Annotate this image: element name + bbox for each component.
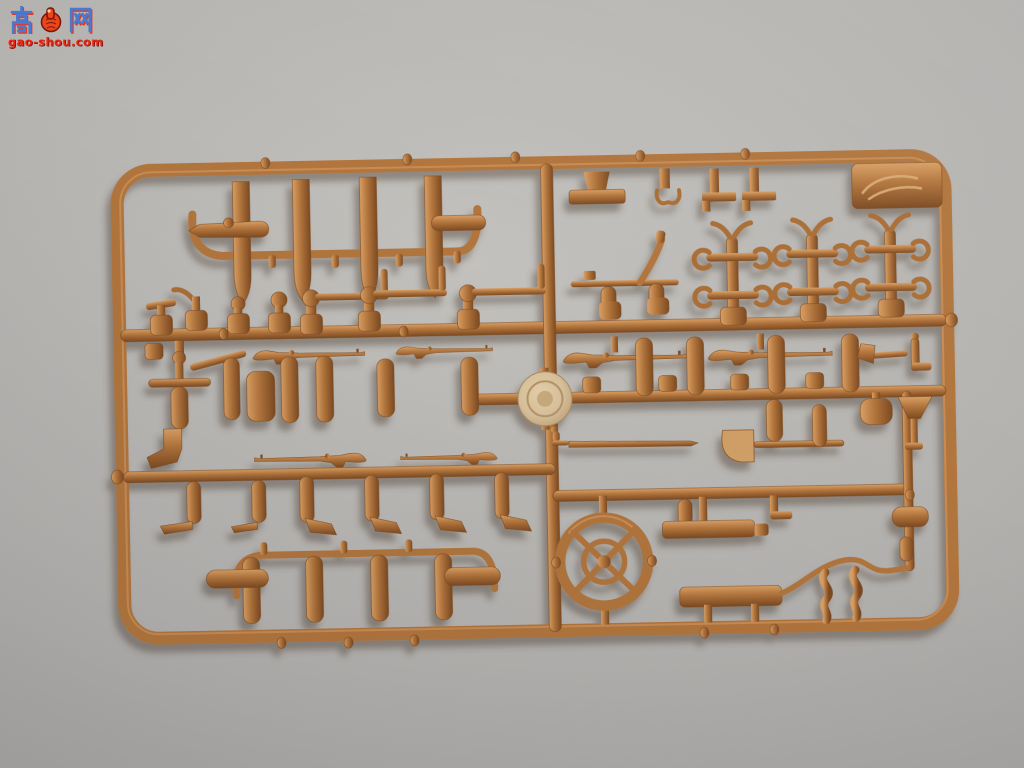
sprue-peg: [396, 253, 403, 266]
entrenching-tool-part: [429, 473, 466, 533]
plate-bracket-part: [569, 171, 626, 204]
barrel-cylinder-part: [292, 179, 311, 301]
sprue-nub: [344, 637, 353, 648]
pod-part-right: [431, 215, 485, 231]
cylinder-part: [370, 555, 388, 621]
watermark-url: gao-shou.com: [8, 35, 104, 49]
hanging-bracket-row: [569, 166, 777, 214]
sprue-pad: [731, 374, 749, 390]
sprue-nub: [511, 152, 520, 163]
sprue-pad: [806, 372, 824, 388]
cylinder-part: [686, 337, 704, 395]
cylinder-part: [841, 334, 859, 392]
pickaxe-rack-part: [851, 214, 929, 317]
sprue-nub: [648, 555, 657, 566]
sprue-stub: [611, 336, 618, 352]
sprue-peg: [260, 542, 267, 555]
middle-left-parts: [145, 335, 498, 471]
winged-post-part: [146, 299, 177, 336]
curved-cable-part: [781, 559, 908, 594]
canteen-pod-part: [892, 506, 928, 527]
hatchet-part: [857, 343, 908, 364]
l-bracket-part: [770, 495, 792, 519]
ball-post-part: [227, 296, 250, 333]
sprue-nub: [399, 326, 408, 337]
sprue-nub: [552, 557, 561, 568]
sprue-nub: [770, 624, 779, 635]
watermark-char-gao: [8, 6, 35, 34]
cylinder-part: [635, 338, 653, 396]
canteen-pod-part: [444, 567, 500, 586]
barrel-cylinder-part: [359, 177, 378, 299]
cylinder-part: [281, 357, 299, 423]
bench-part: [570, 230, 680, 321]
sprue-nub: [403, 154, 412, 165]
sprue-peg: [454, 250, 461, 263]
sprue-pad: [583, 377, 601, 393]
sprue-frame-group: [105, 143, 963, 652]
claw-bracket-part: [656, 168, 679, 203]
entrenching-tool-part: [364, 475, 401, 535]
round-lid-disc-part: [517, 367, 572, 430]
watermark-thumbs-up-icon: [38, 6, 64, 34]
pickaxe-rack-part: [693, 222, 771, 325]
step-bracket-part: [702, 168, 737, 212]
pod-part-left: [188, 217, 268, 239]
s-hook-part: [823, 572, 830, 620]
sprue-peg: [340, 541, 347, 554]
cylinder-part: [434, 554, 452, 620]
sprue-peg: [405, 539, 412, 552]
sprue-nub: [111, 470, 123, 484]
sprue-nub: [277, 637, 286, 648]
watermark-logo-row: 高 网: [8, 6, 104, 34]
canteen-row: [206, 538, 502, 625]
cylinder-part: [461, 357, 479, 415]
right-column-small-parts: [892, 489, 929, 561]
sword-part: [551, 423, 698, 448]
watermark-char-wang: [67, 6, 94, 34]
bullet-cylinder-part: [900, 537, 913, 561]
canteen-pod-part: [206, 569, 268, 588]
sprue-nub: [219, 328, 228, 339]
cylinder-part: [305, 556, 323, 622]
sprue-stub: [757, 334, 764, 350]
sprue-peg: [332, 255, 339, 268]
ball-post-part: [268, 292, 291, 333]
boot-shaped-part: [146, 429, 182, 469]
spoked-wheel-part: [550, 495, 657, 626]
cylinder-part: [316, 356, 334, 422]
machine-gun-part: [456, 264, 546, 330]
cylinder-part: [767, 335, 785, 393]
cylinder-part: [766, 399, 783, 441]
entrenching-tool-part: [494, 472, 531, 532]
entrenching-tool-part: [299, 476, 336, 536]
plank-part-upper: [662, 496, 769, 539]
sprue-nub: [261, 158, 270, 169]
rifle-part: [254, 453, 366, 469]
sprue-nub: [636, 150, 645, 161]
mattock-part: [160, 481, 202, 534]
sprue-nub: [700, 627, 709, 638]
watermark: 高 网 gao-shou.com: [8, 6, 104, 49]
plank-part-lower: [680, 585, 783, 623]
mattock-part: [230, 480, 266, 533]
rifle-part: [253, 349, 365, 365]
sprue-photo: [0, 0, 1024, 768]
sprue-peg: [269, 255, 276, 268]
sprue-nub: [410, 635, 419, 646]
step-bracket-part: [742, 167, 777, 211]
cylinder-part: [812, 404, 827, 446]
rifle-part: [401, 452, 498, 466]
brand-logo-plate: [852, 162, 943, 209]
entrenching-tool-row: [159, 472, 531, 538]
sprue-nub: [905, 489, 914, 500]
barrel-cylinder-part: [232, 181, 251, 303]
cylinder-part: [242, 557, 260, 623]
sprue-nub: [945, 313, 957, 327]
sprue-pad: [145, 343, 163, 359]
rifle-part: [563, 351, 687, 369]
photo-background: 高 网 gao-shou.com: [0, 0, 1024, 768]
pickaxe-rack-part: [773, 219, 851, 322]
s-hook-part: [853, 570, 860, 618]
sprue-nub: [741, 148, 750, 159]
rifle-part: [396, 345, 493, 359]
pouch-part: [246, 371, 275, 422]
cylinder-part: [223, 358, 240, 420]
sprue-pad: [659, 375, 677, 391]
cylinder-part: [377, 359, 395, 417]
curved-arm-post-part: [174, 289, 208, 331]
pistol-part: [911, 332, 932, 370]
